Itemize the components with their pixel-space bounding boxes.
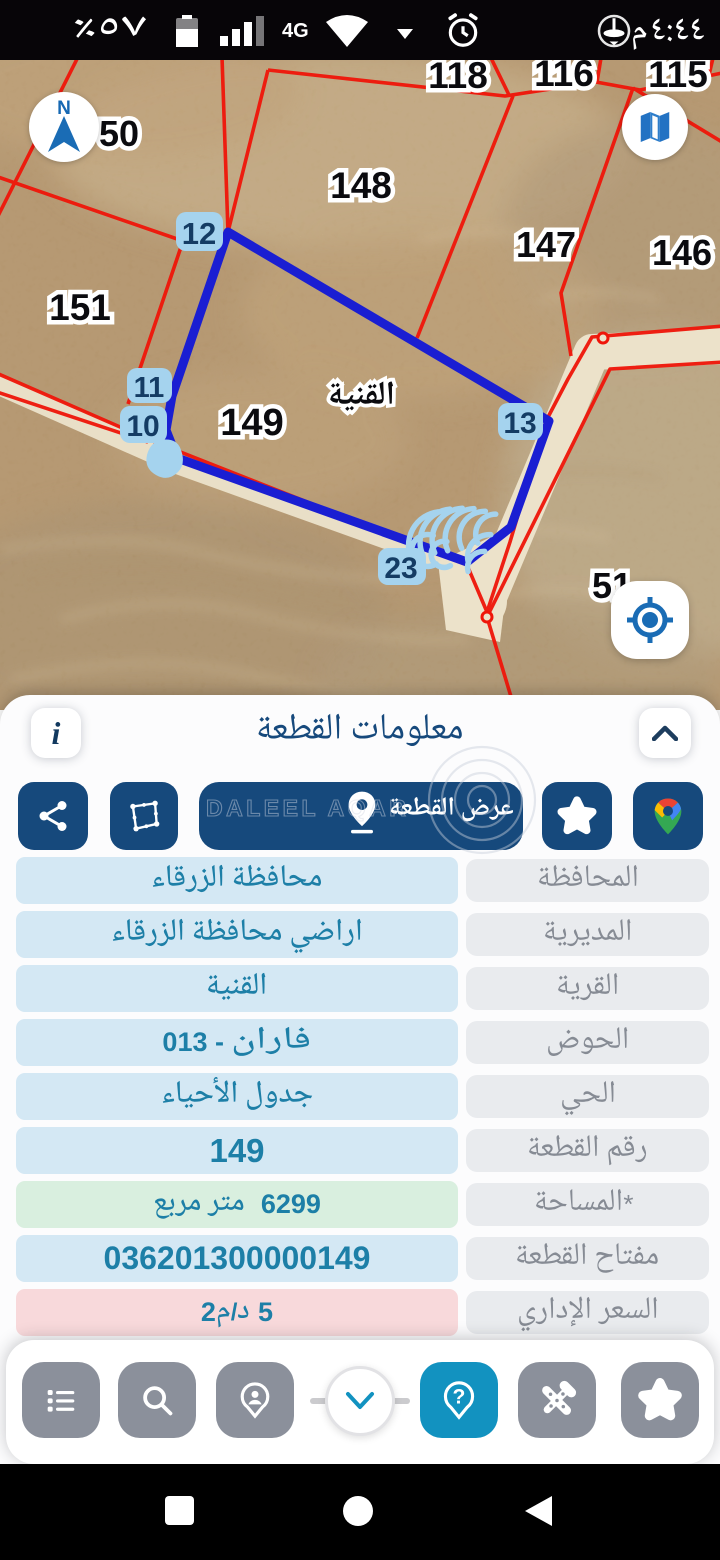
svg-text:148: 148: [330, 165, 392, 206]
svg-text:146: 146: [652, 232, 712, 273]
svg-text:147: 147: [516, 224, 576, 265]
svg-text:10: 10: [126, 410, 159, 443]
svg-text:50: 50: [99, 113, 139, 154]
svg-text:N: N: [57, 98, 71, 119]
svg-text:151: 151: [49, 287, 111, 328]
svg-text:23: 23: [384, 552, 417, 585]
svg-text:13: 13: [503, 407, 536, 440]
svg-text:118: 118: [428, 60, 488, 96]
svg-text:115: 115: [648, 60, 708, 95]
svg-text:116: 116: [534, 60, 594, 94]
svg-text:?: ?: [453, 1385, 466, 1408]
svg-text:149: 149: [220, 402, 283, 444]
svg-text:11: 11: [134, 372, 165, 404]
svg-text:12: 12: [182, 216, 216, 251]
